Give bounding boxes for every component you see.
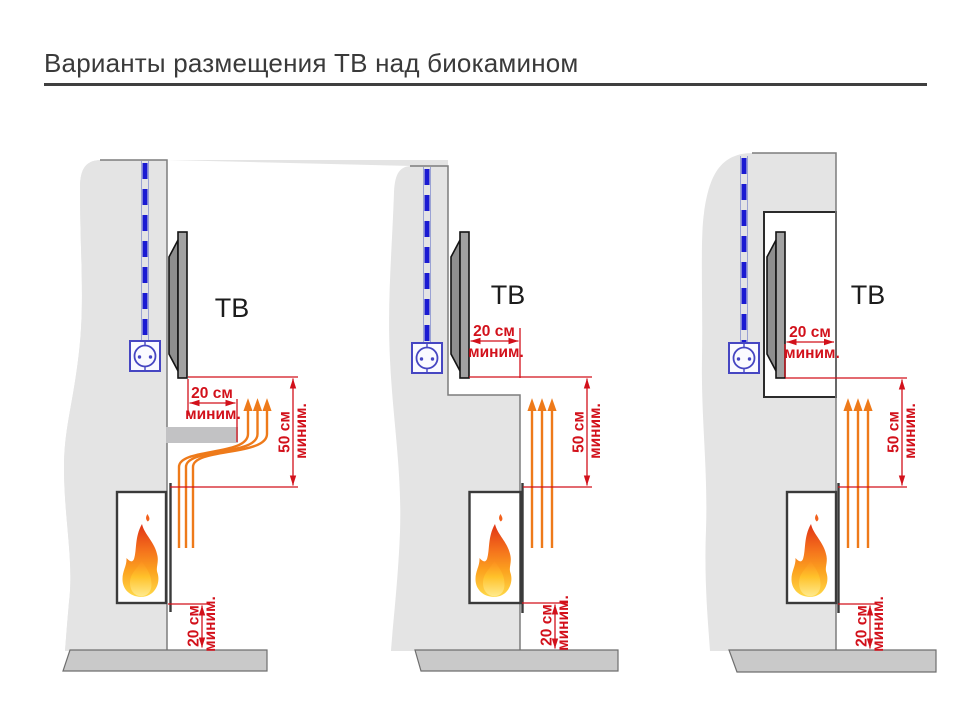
floor-base: [63, 650, 267, 671]
dimensions: 20 см миним. 50 см миним. 20 см миним.: [168, 377, 310, 652]
diagram-variant-3: ТВ 20 см миним. 50 см миним. 20 см мини: [702, 153, 936, 672]
slide: Варианты размещения ТВ над биокамином: [0, 0, 970, 728]
dim-floor-qualifier: миним.: [555, 595, 572, 651]
dim-height-qualifier: миним.: [587, 403, 604, 459]
floor-base: [415, 650, 618, 671]
tv-side-view: [169, 232, 187, 378]
heat-flow-arrows: [848, 410, 868, 548]
tv-label: ТВ: [215, 293, 250, 323]
dim-floor-qualifier: миним.: [202, 596, 219, 652]
dim-height-value: 50 см: [571, 411, 588, 453]
protective-shelf: [166, 427, 238, 443]
diagram-variant-1: ТВ 20 см миним. 50 см миним. 20 см: [63, 160, 448, 671]
dim-height-qualifier: миним.: [293, 403, 310, 459]
tv-side-view: [451, 232, 469, 378]
floor-base: [729, 650, 936, 672]
dim-clearance-value: 20 см: [191, 385, 233, 402]
power-outlet: [412, 343, 442, 373]
dim-floor-value: 20 см: [539, 604, 556, 646]
tv-label: ТВ: [851, 280, 886, 310]
heat-flow-arrows: [532, 410, 552, 548]
dim-clearance-value: 20 см: [789, 324, 831, 341]
dim-floor-value: 20 см: [186, 605, 203, 647]
dim-height-qualifier: миним.: [902, 403, 919, 459]
tv-side-view: [767, 232, 785, 378]
power-outlet: [130, 341, 160, 371]
dim-clearance-value: 20 см: [473, 323, 515, 340]
diagram-canvas: ТВ 20 см миним. 50 см миним. 20 см: [0, 0, 970, 728]
power-outlet: [729, 343, 759, 373]
diagram-variant-2: ТВ 20 см миним. 50 см миним. 20 см мини: [389, 166, 618, 671]
tv-label: ТВ: [491, 280, 526, 310]
dim-floor-qualifier: миним.: [870, 596, 887, 652]
dim-clearance-qualifier: миним.: [784, 345, 840, 362]
power-cable: [741, 156, 748, 343]
dim-height-value: 50 см: [277, 411, 294, 453]
dim-height-value: 50 см: [886, 411, 903, 453]
dim-clearance-qualifier: миним.: [468, 344, 524, 361]
dim-floor-value: 20 см: [854, 605, 871, 647]
dim-clearance-qualifier: миним.: [185, 406, 241, 423]
